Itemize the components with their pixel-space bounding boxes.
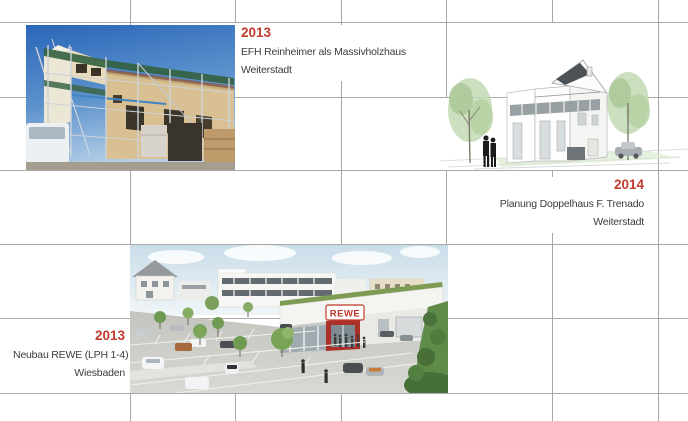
project-title: Planung Doppelhaus F. Trenado — [476, 195, 644, 213]
project-year: 2014 — [476, 177, 644, 193]
grid-line-vertical — [235, 393, 236, 421]
rewe-rendering[interactable]: REWE — [130, 245, 448, 393]
grid-line-vertical — [446, 170, 447, 244]
portfolio-timeline-page: REWE — [0, 0, 688, 421]
project-caption-efh: 2013 EFH Reinheimer als Massivholzhaus W… — [241, 25, 415, 81]
project-year: 2013 — [241, 25, 413, 41]
grid-line-vertical — [235, 0, 236, 22]
project-year: 2013 — [13, 328, 125, 344]
project-title: EFH Reinheimer als Massivholzhaus — [241, 43, 413, 61]
grid-line-vertical — [341, 393, 342, 421]
project-location: Weiterstadt — [241, 61, 413, 79]
doppelhaus-rendering[interactable] — [440, 55, 688, 170]
svg-text:REWE: REWE — [330, 309, 361, 320]
grid-line-horizontal — [0, 170, 688, 171]
grid-line-vertical — [552, 0, 553, 22]
project-location: Wiesbaden — [13, 364, 125, 382]
grid-line-horizontal — [0, 22, 688, 23]
grid-line-horizontal — [0, 393, 688, 394]
project-caption-doppelhaus: 2014 Planung Doppelhaus F. Trenado Weite… — [472, 177, 646, 233]
project-caption-rewe: 2013 Neubau REWE (LPH 1-4) Wiesbaden — [13, 328, 127, 384]
project-location: Weiterstadt — [476, 213, 644, 231]
construction-photo[interactable] — [26, 25, 235, 170]
project-title: Neubau REWE (LPH 1-4) — [13, 346, 125, 364]
